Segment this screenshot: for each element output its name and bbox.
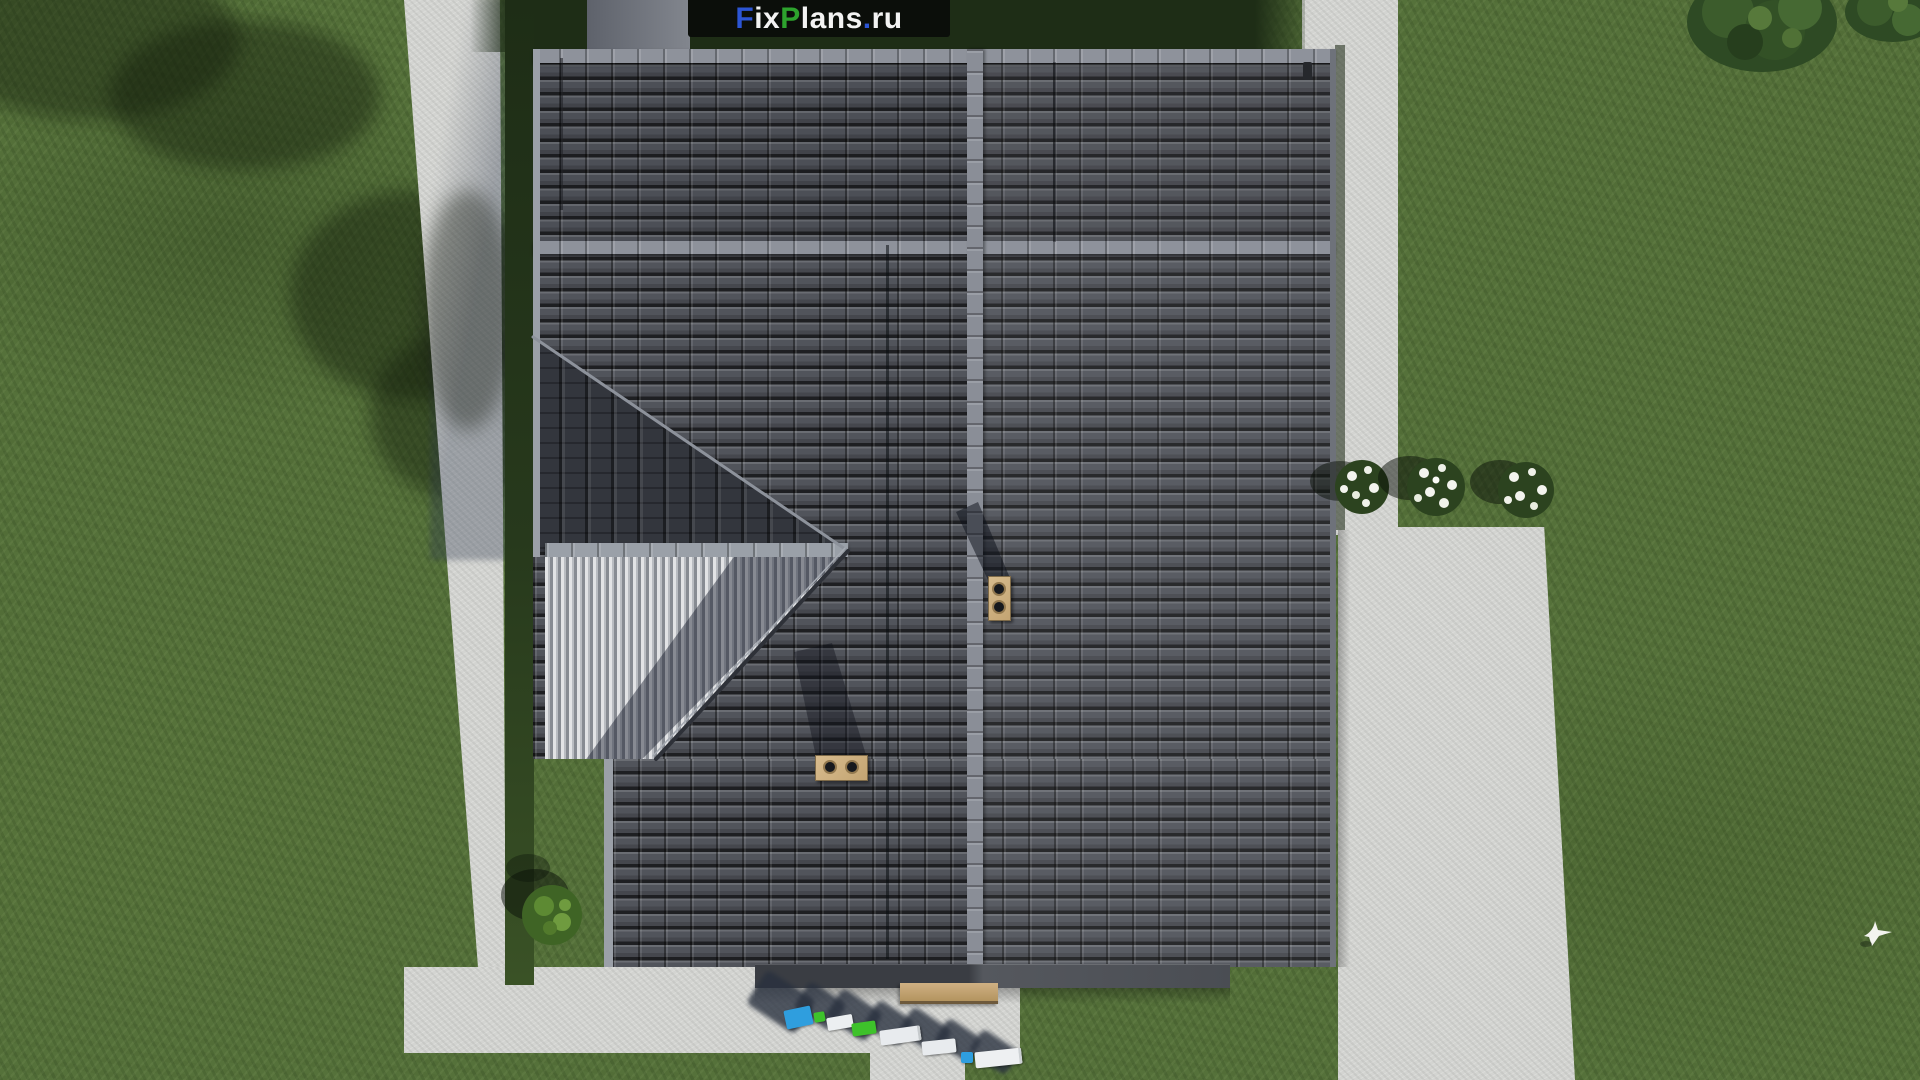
logo-text: FixPlans.ru [735, 4, 902, 34]
aerial-roof-render: FixPlans.ru [0, 0, 1920, 1080]
roof-upper-slope [533, 49, 1335, 245]
main-ridge-cap [533, 241, 1335, 254]
roof-right-edge-trim [1330, 49, 1336, 967]
roof-seam [886, 245, 889, 959]
roofside-shadow-strip [505, 0, 534, 985]
logo-segment: F [735, 2, 754, 35]
tree-canopy-large [1687, 0, 1837, 72]
fixplans-logo: FixPlans.ru [688, 0, 950, 37]
roof-edge-cast-shadow [1338, 530, 1350, 967]
porch-ridge-cap [545, 543, 848, 557]
chimney-flue [992, 582, 1006, 596]
logo-segment: ix [754, 2, 780, 35]
logo-segment: ru [872, 2, 903, 35]
roof-vent [1303, 62, 1312, 80]
chimney-flue [823, 760, 837, 774]
roof-left-edge-trim [533, 49, 540, 557]
left-path-tree-shadow [420, 190, 515, 430]
blue-object [961, 1052, 973, 1063]
chimney-flue [992, 600, 1006, 614]
logo-segment: P [780, 2, 801, 35]
vertical-ridge-cap [967, 49, 983, 967]
right-large-path [1338, 527, 1575, 1080]
top-ridge-cap [533, 49, 1335, 63]
roofside-shadow-strip-right [1335, 45, 1345, 530]
green-object [813, 1011, 826, 1023]
chimney-2 [815, 755, 868, 781]
logo-segment: lans [801, 2, 863, 35]
tree-canopy-small [1845, 0, 1920, 42]
chimney-1 [988, 576, 1011, 621]
roof-seam-upper [1053, 62, 1056, 242]
roof-lower-left-edge-trim [604, 759, 613, 967]
garden-bench [900, 983, 998, 1004]
white-object [974, 1048, 1022, 1069]
antenna-shadow-line [560, 58, 563, 210]
top-walkway [587, 0, 690, 50]
white-bird [1860, 921, 1892, 947]
logo-segment: . [863, 2, 872, 35]
flower-bush-3 [1470, 460, 1554, 518]
chimney-flue [845, 760, 859, 774]
